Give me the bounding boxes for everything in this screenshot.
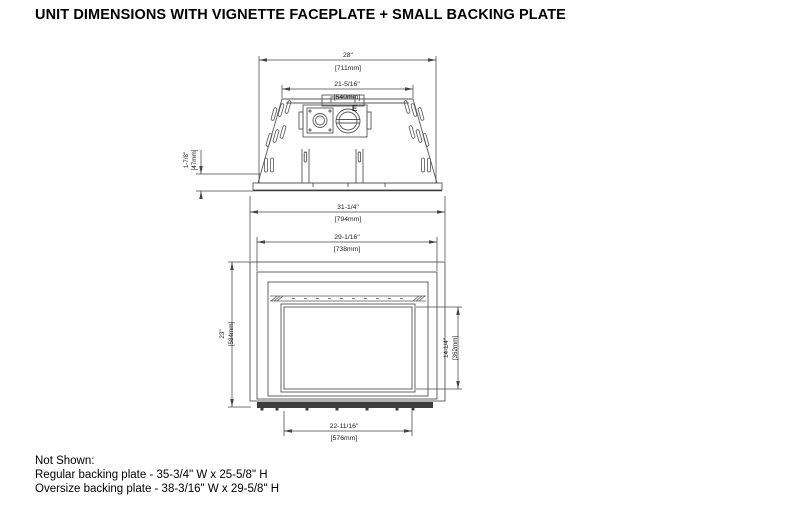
dim-576mm-label: [576mm] — [331, 435, 358, 442]
notes-block: Not Shown: Regular backing plate - 35-3/… — [35, 454, 279, 496]
dim-overall-width-28: 28" [711mm] — [259, 52, 436, 183]
left-vent-slots — [265, 100, 292, 172]
dimension-drawing: E — [0, 0, 800, 509]
faceplate-inner-outline — [268, 282, 428, 396]
backing-plate-outline — [250, 262, 445, 401]
front-view-drawing — [250, 262, 445, 411]
dim-faceplate-width-29-1-16: 29-1/16" [738mm] — [257, 234, 437, 271]
bottom-base-bar — [257, 402, 433, 411]
dim-31-1-4in-label: 31-1/4" — [337, 204, 359, 211]
air-intake-plate — [307, 108, 333, 133]
dim-14-1-4in-label: 14-1/4" — [443, 338, 450, 358]
dim-47mm-label: [47mm] — [191, 149, 198, 170]
dim-opening-width-22-11-16: 22-11/16" [576mm] — [284, 411, 412, 442]
top-view-drawing: E — [253, 95, 442, 191]
notes-heading: Not Shown: — [35, 454, 279, 468]
dim-1-7-8in-label: 1-7/8" — [183, 152, 190, 169]
backing-plate-strip — [253, 183, 442, 191]
firebox-opening-outline — [281, 304, 415, 392]
manual-page: UNIT DIMENSIONS WITH VIGNETTE FACEPLATE … — [0, 0, 800, 509]
dim-opening-height-14-1-4: 14-1/4" [362mm] — [416, 307, 462, 389]
dim-top-width-21-5-16: 21-5/16" [540mm] — [282, 81, 413, 101]
top-louver-band — [270, 296, 426, 301]
flue-callout-label: E — [352, 104, 358, 113]
dim-plate-height-1-7-8: 1-7/8" [47mm] — [183, 149, 260, 199]
dim-overall-height-23: 23" [584mm] — [219, 262, 251, 407]
dim-794mm-label: [794mm] — [335, 216, 362, 223]
dim-540mm-label: [540mm] — [334, 94, 361, 101]
support-legs — [302, 149, 363, 183]
notes-regular-backing-plate: Regular backing plate - 35-3/4" W x 25-5… — [35, 468, 279, 482]
dim-23in-label: 23" — [219, 329, 226, 338]
flue-box: E — [299, 104, 371, 137]
dim-711mm-label: [711mm] — [335, 65, 361, 72]
notes-oversize-backing-plate: Oversize backing plate - 38-3/16" W x 29… — [35, 482, 279, 496]
dim-362mm-label: [362mm] — [452, 336, 459, 361]
dim-21-5-16in-label: 21-5/16" — [334, 81, 360, 88]
dim-28in-label: 28" — [343, 52, 354, 59]
dim-22-11-16in-label: 22-11/16" — [330, 423, 359, 430]
dim-584mm-label: [584mm] — [228, 322, 235, 347]
glass-outline — [284, 307, 412, 389]
dim-738mm-label: [738mm] — [334, 246, 361, 253]
right-vent-slots — [404, 100, 431, 172]
dim-29-1-16in-label: 29-1/16" — [334, 234, 360, 241]
